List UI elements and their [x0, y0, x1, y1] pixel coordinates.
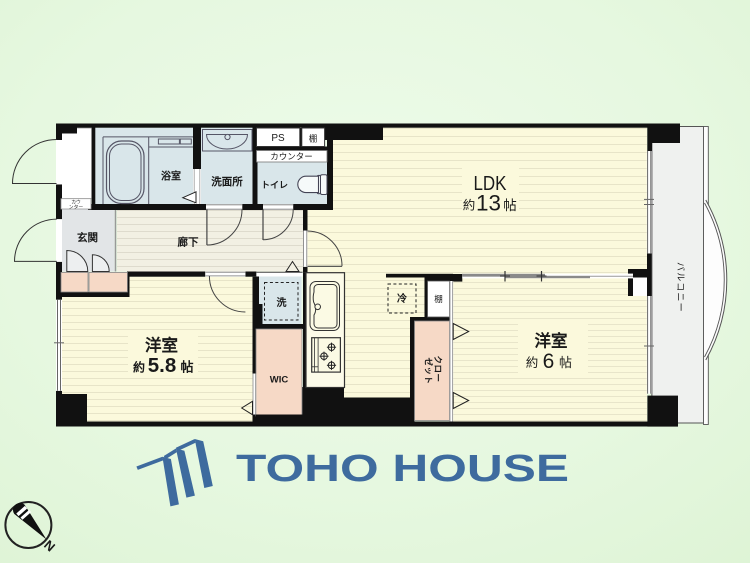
svg-text:洋室: 洋室	[145, 335, 178, 355]
svg-text:6: 6	[543, 350, 555, 373]
svg-text:5.8: 5.8	[148, 354, 177, 377]
svg-text:洗: 洗	[277, 296, 287, 309]
svg-text:ゼット: ゼット	[424, 357, 434, 384]
svg-text:玄関: 玄関	[77, 231, 98, 244]
svg-text:洋室: 洋室	[535, 331, 568, 351]
svg-text:帖: 帖	[180, 360, 193, 375]
svg-text:約: 約	[526, 355, 539, 370]
svg-text:カウンター: カウンター	[270, 152, 313, 162]
svg-text:バルコニー: バルコニー	[676, 262, 686, 313]
svg-text:約: 約	[463, 198, 476, 213]
svg-text:TOHO HOUSE: TOHO HOUSE	[236, 448, 569, 490]
svg-text:ンター: ンター	[69, 203, 84, 210]
svg-text:廊下: 廊下	[178, 236, 199, 249]
svg-text:浴室: 浴室	[161, 170, 181, 183]
svg-text:棚: 棚	[309, 134, 318, 144]
svg-text:クロー: クロー	[433, 355, 443, 382]
svg-text:冷: 冷	[397, 292, 407, 305]
svg-text:13: 13	[476, 191, 501, 216]
svg-text:棚: 棚	[434, 294, 443, 304]
svg-text:帖: 帖	[503, 198, 517, 213]
svg-text:PS: PS	[271, 133, 285, 144]
svg-text:帖: 帖	[559, 355, 572, 370]
svg-text:洗面所: 洗面所	[211, 175, 243, 188]
svg-text:約: 約	[133, 360, 145, 375]
svg-text:トイレ: トイレ	[261, 180, 288, 190]
svg-text:WIC: WIC	[270, 375, 289, 386]
